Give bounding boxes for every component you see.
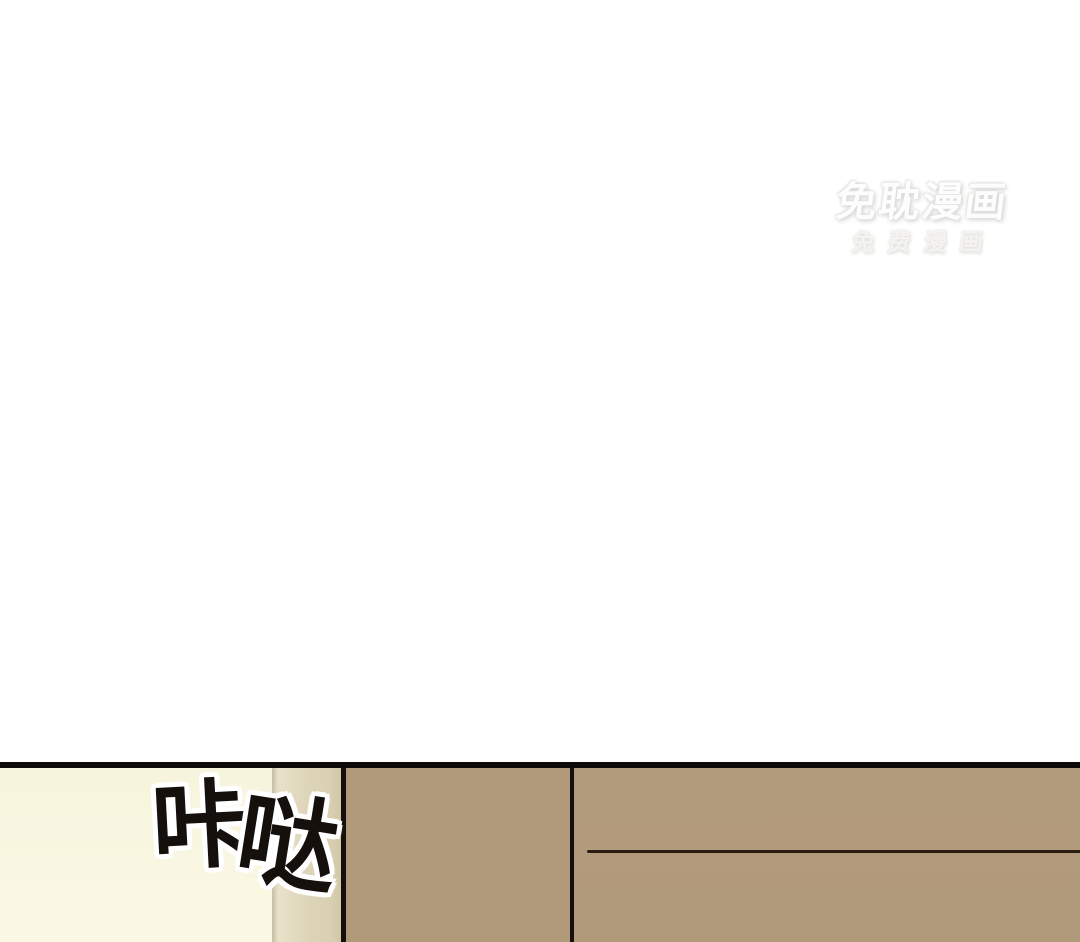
watermark: 免耽漫画 免费漫画 <box>830 182 1011 254</box>
webtoon-page: 免耽漫画 免费漫画 咔 哒 <box>0 0 1080 942</box>
comic-panel: 咔 哒 <box>0 762 1080 942</box>
sfx-char-da: 哒 <box>231 787 345 901</box>
watermark-title: 免耽漫画 <box>833 182 1010 223</box>
sfx-kada: 咔 哒 <box>0 762 1080 942</box>
watermark-subtitle: 免费漫画 <box>830 230 1005 254</box>
